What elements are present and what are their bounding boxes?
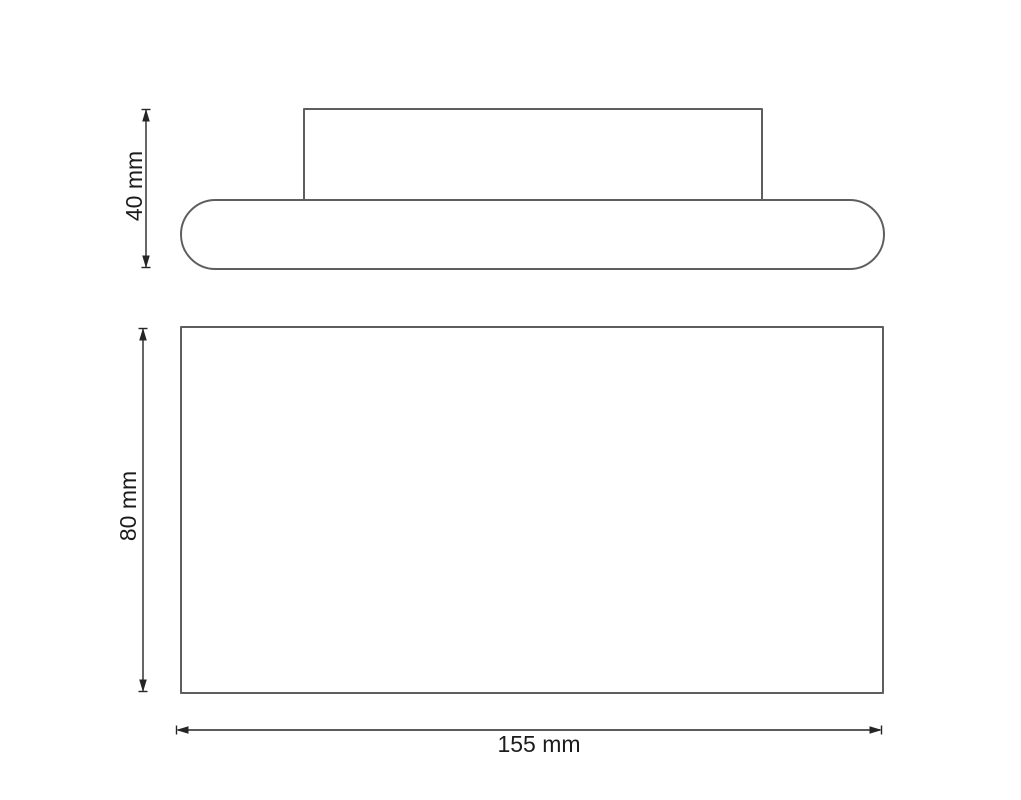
- drawing-page: 40 mm 80 mm 155 mm: [0, 0, 1021, 800]
- arrowhead-down-icon: [139, 680, 147, 693]
- side-view: [181, 109, 884, 269]
- arrowhead-down-icon: [142, 256, 150, 269]
- arrowhead-up-icon: [142, 109, 150, 122]
- technical-drawing: 40 mm 80 mm 155 mm: [0, 0, 1021, 800]
- dimension-label-80mm: 80 mm: [115, 471, 141, 541]
- front-face-outline: [181, 327, 883, 693]
- mounting-plate-outline: [304, 109, 762, 200]
- arrowhead-left-icon: [176, 726, 189, 734]
- rounded-body-outline: [181, 200, 884, 269]
- dimension-label-40mm: 40 mm: [121, 151, 147, 221]
- dimension-label-155mm: 155 mm: [497, 731, 580, 757]
- dimension-width-155mm: 155 mm: [176, 726, 882, 758]
- front-view: [181, 327, 883, 693]
- dimension-height-80mm: 80 mm: [115, 328, 148, 692]
- dimension-height-40mm: 40 mm: [121, 109, 151, 268]
- arrowhead-up-icon: [139, 328, 147, 341]
- arrowhead-right-icon: [870, 726, 883, 734]
